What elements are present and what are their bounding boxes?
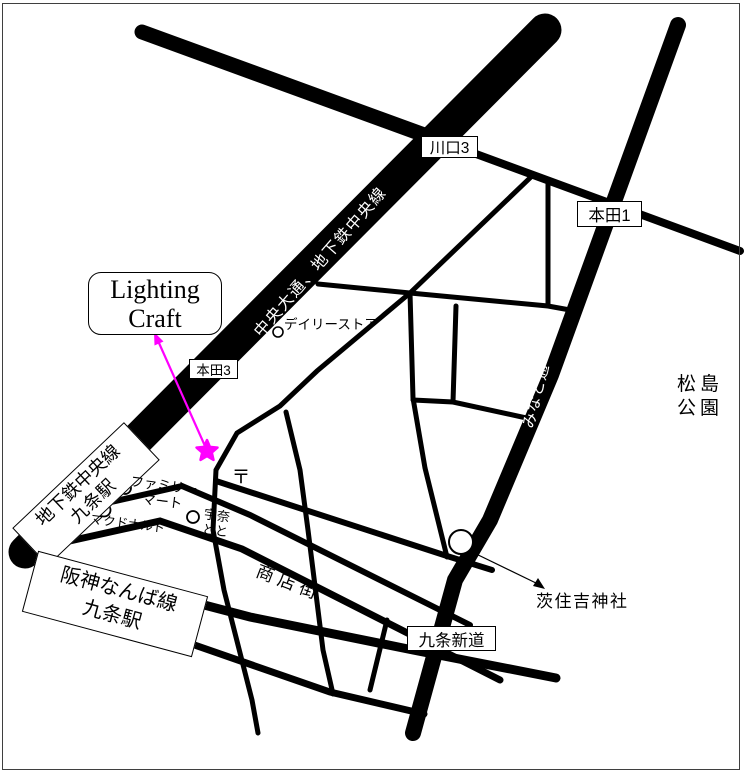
destination-callout: Lighting Craft — [88, 272, 222, 335]
intersection-honda1: 本田1 — [577, 201, 642, 227]
destination-name-line2: Craft — [128, 304, 181, 333]
shrine-arrowhead-icon — [533, 578, 545, 589]
poi-matsushima-park: 松島 公園 — [677, 373, 723, 421]
daily-store-circle-icon — [273, 327, 283, 337]
intersection-honda3: 本田3 — [189, 359, 238, 379]
road-honda — [438, 140, 740, 251]
shrine-circle-icon — [449, 530, 473, 554]
poi-matsushima-line1: 松島 — [677, 373, 723, 397]
map-canvas: 中央大通、地下鉄中央線 みなと通 — [0, 0, 749, 773]
access-map: 中央大通、地下鉄中央線 みなと通 Lighting Craft 川口3 本田1 … — [0, 0, 749, 773]
intersection-kawaguchi3: 川口3 — [421, 136, 478, 158]
destination-name-line1: Lighting — [110, 275, 200, 304]
intersection-kujo-shindo: 九条新道 — [407, 626, 496, 651]
street-horizontal-2 — [413, 400, 531, 419]
poi-unatoto-line2: とと — [201, 521, 229, 539]
street-vertical-3 — [453, 306, 456, 402]
road-north — [142, 32, 438, 140]
poi-ibasumiyoshi-shrine: 茨住吉神社 — [536, 592, 629, 612]
poi-matsushima-line2: 公園 — [677, 397, 723, 421]
street-diagonal-1 — [410, 176, 532, 293]
street-vertical-2 — [410, 293, 447, 557]
poi-daily-store: デイリーストア — [284, 317, 378, 333]
post-office-icon: 〒 — [231, 467, 250, 489]
street-cross-2 — [370, 620, 387, 690]
poi-unatoto: 宇奈 とと — [201, 507, 230, 540]
street-horizontal-1 — [318, 284, 570, 310]
location-star-icon — [197, 440, 218, 460]
